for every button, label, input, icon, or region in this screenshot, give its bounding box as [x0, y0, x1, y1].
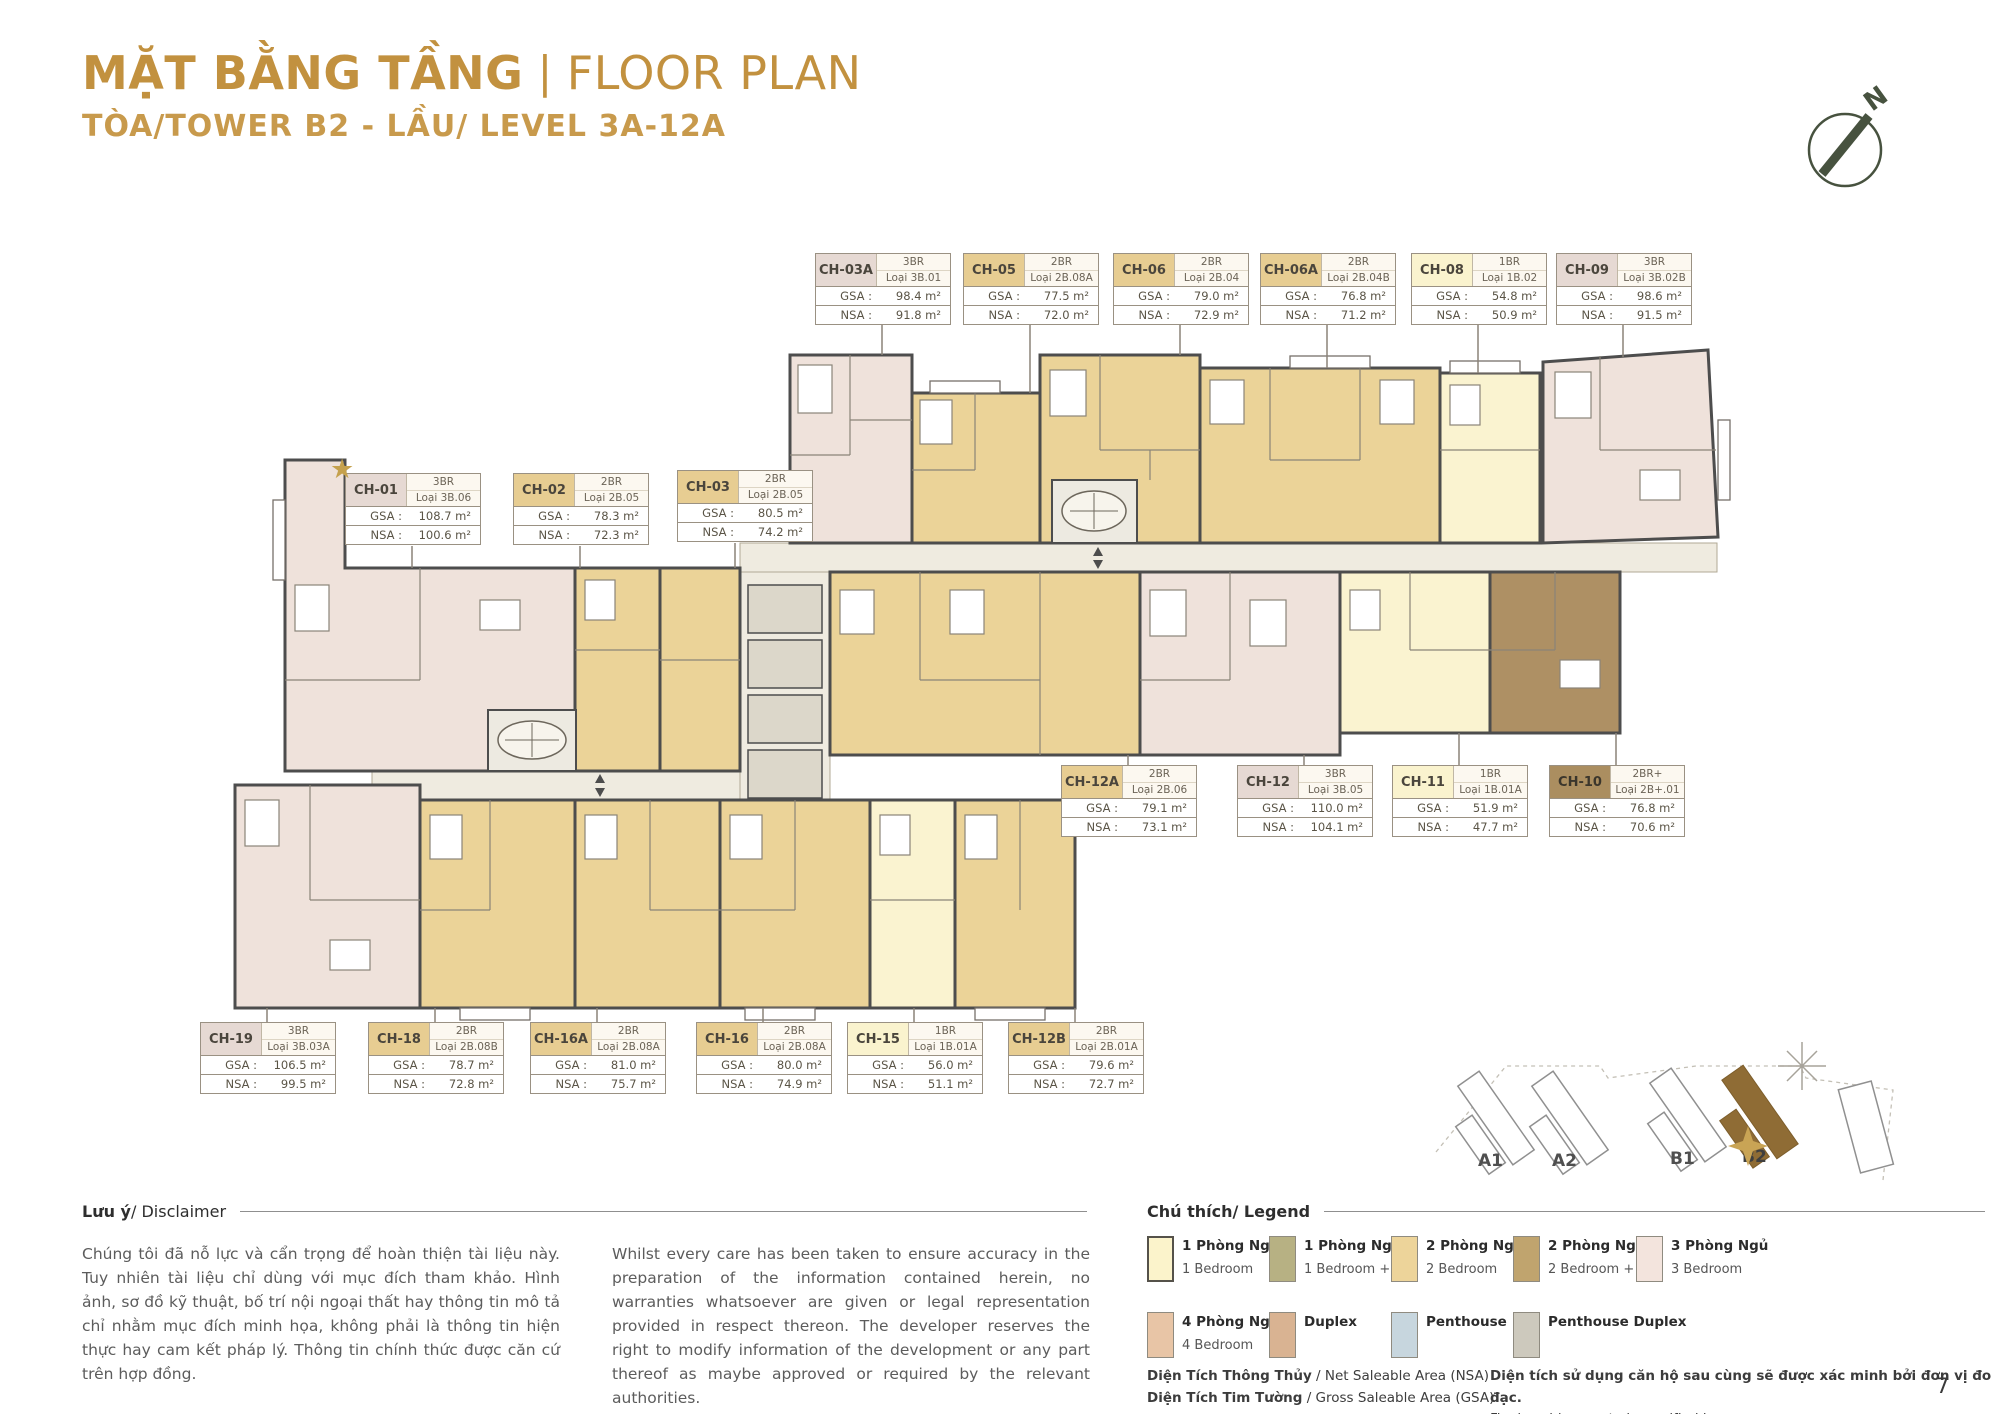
unit-nsa-row: NSA : 91.8 m²	[816, 305, 950, 324]
legend-item-9: Penthouse Duplex	[1513, 1312, 1636, 1358]
unit-id: CH-12A	[1062, 766, 1123, 798]
unit-type: Loại 2B.06	[1123, 783, 1196, 799]
unit-gsa-row: GSA : 108.7 m²	[346, 507, 480, 525]
nsa-value: 72.9 m²	[1170, 308, 1248, 322]
unit-bedrooms: 2BR	[1070, 1023, 1143, 1040]
unit-gsa-row: GSA : 79.0 m²	[1114, 287, 1248, 305]
page-number: 7	[1936, 1374, 1949, 1398]
legend-item-1: 1 Phòng Ngủ 1 Bedroom	[1147, 1236, 1269, 1282]
unit-label-header: CH-11 1BR Loại 1B.01A	[1393, 766, 1527, 799]
unit-type: Loại 3B.02B	[1618, 271, 1691, 287]
unit-label-header: CH-02 2BR Loại 2B.05	[514, 474, 648, 507]
unit-id: CH-16A	[531, 1023, 592, 1055]
unit-label-CH-11: ★ CH-11 1BR Loại 1B.01A GSA : 51.9 m² NS…	[1392, 765, 1528, 837]
unit-label-header: CH-06A 2BR Loại 2B.04B	[1261, 254, 1395, 287]
gsa-label: GSA :	[678, 506, 734, 520]
unit-bedrooms: 1BR	[1473, 254, 1546, 271]
unit-id: CH-18	[369, 1023, 430, 1055]
legend-item-4: 2 Phòng Ngủ + 2 Bedroom +	[1513, 1236, 1636, 1282]
unit-type: Loại 1B.01A	[1454, 783, 1527, 799]
nsa-label: NSA :	[1062, 820, 1118, 834]
gsa-value: 81.0 m²	[587, 1058, 665, 1072]
legend-verify-note: Diện tích sử dụng căn hộ sau cùng sẽ đượ…	[1490, 1366, 2000, 1414]
unit-bedrooms: 2BR	[430, 1023, 503, 1040]
nsa-value: 104.1 m²	[1294, 820, 1372, 834]
nsa-label: NSA :	[1114, 308, 1170, 322]
unit-label-header: CH-05 2BR Loại 2B.08A	[964, 254, 1098, 287]
gsa-label: GSA :	[848, 1058, 904, 1072]
gsa-value: 108.7 m²	[402, 509, 480, 523]
gsa-label: GSA :	[346, 509, 402, 523]
nsa-value: 75.7 m²	[587, 1077, 665, 1091]
nsa-label: NSA :	[1557, 308, 1613, 322]
unit-bedrooms: 3BR	[1618, 254, 1691, 271]
unit-label-CH-05: ★ CH-05 2BR Loại 2B.08A GSA : 77.5 m² NS…	[963, 253, 1099, 325]
gsa-value: 78.3 m²	[570, 509, 648, 523]
legend-label-en: 2 Bedroom	[1426, 1262, 1523, 1277]
unit-bedrooms: 2BR	[1175, 254, 1248, 271]
nsa-value: 72.3 m²	[570, 528, 648, 542]
unit-nsa-row: NSA : 74.9 m²	[697, 1074, 831, 1093]
unit-nsa-row: NSA : 74.2 m²	[678, 522, 812, 541]
unit-type: Loại 2B.05	[739, 488, 812, 504]
unit-bedrooms: 3BR	[262, 1023, 335, 1040]
unit-bedrooms: 2BR	[1025, 254, 1098, 271]
legend-item-7: Duplex	[1269, 1312, 1391, 1358]
unit-label-header: CH-12 3BR Loại 3B.05	[1238, 766, 1372, 799]
unit-type: Loại 2B.01A	[1070, 1040, 1143, 1056]
unit-gsa-row: GSA : 78.3 m²	[514, 507, 648, 525]
gsa-label: GSA :	[1261, 289, 1317, 303]
left-wing-corridor	[372, 771, 740, 800]
nsa-value: 50.9 m²	[1468, 308, 1546, 322]
unit-label-CH-16: ★ CH-16 2BR Loại 2B.08A GSA : 80.0 m² NS…	[696, 1022, 832, 1094]
disclaimer-heading: Lưu ý / Disclaimer	[82, 1202, 1087, 1221]
nsa-value: 74.9 m²	[753, 1077, 831, 1091]
legend-swatch	[1391, 1236, 1418, 1282]
gsa-label: GSA :	[816, 289, 872, 303]
gsa-value: 77.5 m²	[1020, 289, 1098, 303]
unit-id: CH-02	[514, 474, 575, 506]
unit-label-CH-03A: ★ CH-03A 3BR Loại 3B.01 GSA : 98.4 m² NS…	[815, 253, 951, 325]
unit-bedrooms: 2BR	[1123, 766, 1196, 783]
nsa-label: NSA :	[964, 308, 1020, 322]
gsa-value: 76.8 m²	[1317, 289, 1395, 303]
unit-id: CH-11	[1393, 766, 1454, 798]
unit-nsa-row: NSA : 50.9 m²	[1412, 305, 1546, 324]
verify-note-en: Final usable area to be verified by surv…	[1490, 1409, 2000, 1414]
unit-id: CH-05	[964, 254, 1025, 286]
gsa-value: 78.7 m²	[425, 1058, 503, 1072]
minimap-other-building	[1838, 1081, 1893, 1173]
main-corridor	[740, 543, 1717, 572]
legend-swatch	[1391, 1312, 1418, 1358]
unit-bedrooms: 2BR	[739, 471, 812, 488]
unit-nsa-row: NSA : 104.1 m²	[1238, 817, 1372, 836]
nsa-label: NSA :	[1009, 1077, 1065, 1091]
nsa-value: 91.5 m²	[1613, 308, 1691, 322]
unit-nsa-row: NSA : 75.7 m²	[531, 1074, 665, 1093]
gsa-label: GSA :	[697, 1058, 753, 1072]
legend-item-6: 4 Phòng Ngủ 4 Bedroom	[1147, 1312, 1269, 1358]
unit-id: CH-08	[1412, 254, 1473, 286]
unit-nsa-row: NSA : 72.8 m²	[369, 1074, 503, 1093]
legend-label-vn: Duplex	[1304, 1314, 1357, 1330]
unit-gsa-row: GSA : 81.0 m²	[531, 1056, 665, 1074]
minimap-label-b1: B1	[1670, 1149, 1695, 1169]
legend-notes: Diện Tích Thông Thủy / Net Saleable Area…	[1147, 1366, 1494, 1409]
legend-label-vn: 1 Phòng Ngủ	[1182, 1238, 1279, 1254]
unit-id: CH-19	[201, 1023, 262, 1055]
unit-nsa-row: NSA : 47.7 m²	[1393, 817, 1527, 836]
unit-gsa-row: GSA : 56.0 m²	[848, 1056, 982, 1074]
unit-label-CH-09: ★ CH-09 3BR Loại 3B.02B GSA : 98.6 m² NS…	[1556, 253, 1692, 325]
legend-swatch	[1513, 1312, 1540, 1358]
legend-swatch	[1269, 1312, 1296, 1358]
unit-label-CH-16A: ★ CH-16A 2BR Loại 2B.08A GSA : 81.0 m² N…	[530, 1022, 666, 1094]
verify-note-vn: Diện tích sử dụng căn hộ sau cùng sẽ đượ…	[1490, 1366, 2000, 1409]
legend-rule	[1324, 1211, 1985, 1212]
legend-heading-en: / Legend	[1233, 1202, 1311, 1221]
gsa-value: 76.8 m²	[1606, 801, 1684, 815]
legend-label-vn: 4 Phòng Ngủ	[1182, 1314, 1279, 1330]
unit-gsa-row: GSA : 80.5 m²	[678, 504, 812, 522]
gsa-value: 80.0 m²	[753, 1058, 831, 1072]
gsa-label: GSA :	[531, 1058, 587, 1072]
unit-nsa-row: NSA : 72.3 m²	[514, 525, 648, 544]
unit-gsa-row: GSA : 98.6 m²	[1557, 287, 1691, 305]
nsa-value: 72.7 m²	[1065, 1077, 1143, 1091]
unit-type: Loại 2B.08A	[758, 1040, 831, 1056]
legend-item-5: 3 Phòng Ngủ 3 Bedroom	[1636, 1236, 1867, 1282]
nsa-value: 73.1 m²	[1118, 820, 1196, 834]
nsa-value: 71.2 m²	[1317, 308, 1395, 322]
unit-nsa-row: NSA : 71.2 m²	[1261, 305, 1395, 324]
unit-nsa-row: NSA : 72.7 m²	[1009, 1074, 1143, 1093]
legend-swatch	[1269, 1236, 1296, 1282]
unit-gsa-row: GSA : 106.5 m²	[201, 1056, 335, 1074]
unit-label-CH-02: ★ CH-02 2BR Loại 2B.05 GSA : 78.3 m² NSA…	[513, 473, 649, 545]
unit-bedrooms: 3BR	[407, 474, 480, 491]
nsa-label: NSA :	[816, 308, 872, 322]
unit-label-CH-12B: ★ CH-12B 2BR Loại 2B.01A GSA : 79.6 m² N…	[1008, 1022, 1144, 1094]
legend-label-vn: 2 Phòng Ngủ	[1426, 1238, 1523, 1254]
unit-label-header: CH-16 2BR Loại 2B.08A	[697, 1023, 831, 1056]
nsa-value: 51.1 m²	[904, 1077, 982, 1091]
legend-label-vn: Penthouse	[1426, 1314, 1507, 1330]
legend-note-line: Diện Tích Tim Tường / Gross Saleable Are…	[1147, 1388, 1494, 1410]
legend-swatch	[1513, 1236, 1540, 1282]
unit-type: Loại 3B.03A	[262, 1040, 335, 1056]
unit-label-header: CH-06 2BR Loại 2B.04	[1114, 254, 1248, 287]
unit-type: Loại 3B.05	[1299, 783, 1372, 799]
nsa-value: 99.5 m²	[257, 1077, 335, 1091]
disclaimer-heading-vn: Lưu ý	[82, 1202, 131, 1221]
unit-label-header: CH-18 2BR Loại 2B.08B	[369, 1023, 503, 1056]
unit-nsa-row: NSA : 99.5 m²	[201, 1074, 335, 1093]
disclaimer-text-vn: Chúng tôi đã nỗ lực và cẩn trọng để hoàn…	[82, 1242, 560, 1386]
unit-bedrooms: 2BR	[575, 474, 648, 491]
unit-gsa-row: GSA : 79.1 m²	[1062, 799, 1196, 817]
legend-swatch	[1147, 1236, 1174, 1282]
gsa-label: GSA :	[1550, 801, 1606, 815]
gsa-label: GSA :	[201, 1058, 257, 1072]
nsa-value: 72.0 m²	[1020, 308, 1098, 322]
legend-heading: Chú thích / Legend	[1147, 1202, 1985, 1221]
gsa-value: 51.9 m²	[1449, 801, 1527, 815]
nsa-value: 100.6 m²	[402, 528, 480, 542]
unit-type: Loại 2B.08B	[430, 1040, 503, 1056]
unit-bedrooms: 2BR+	[1611, 766, 1684, 783]
unit-type: Loại 3B.06	[407, 491, 480, 507]
unit-area-CH-03	[660, 568, 740, 771]
unit-gsa-row: GSA : 54.8 m²	[1412, 287, 1546, 305]
nsa-label: NSA :	[346, 528, 402, 542]
unit-id: CH-10	[1550, 766, 1611, 798]
unit-label-header: CH-16A 2BR Loại 2B.08A	[531, 1023, 665, 1056]
gsa-label: GSA :	[1062, 801, 1118, 815]
unit-nsa-row: NSA : 72.0 m²	[964, 305, 1098, 324]
unit-id: CH-06A	[1261, 254, 1322, 286]
unit-id: CH-01	[346, 474, 407, 506]
unit-label-CH-18: ★ CH-18 2BR Loại 2B.08B GSA : 78.7 m² NS…	[368, 1022, 504, 1094]
unit-nsa-row: NSA : 100.6 m²	[346, 525, 480, 544]
unit-type: Loại 2B.04	[1175, 271, 1248, 287]
unit-id: CH-16	[697, 1023, 758, 1055]
gsa-value: 98.4 m²	[872, 289, 950, 303]
star-icon: ★	[330, 456, 354, 483]
unit-gsa-row: GSA : 80.0 m²	[697, 1056, 831, 1074]
nsa-value: 47.7 m²	[1449, 820, 1527, 834]
disclaimer-rule	[240, 1211, 1087, 1212]
unit-label-CH-12: ★ CH-12 3BR Loại 3B.05 GSA : 110.0 m² NS…	[1237, 765, 1373, 837]
nsa-label: NSA :	[531, 1077, 587, 1091]
unit-nsa-row: NSA : 91.5 m²	[1557, 305, 1691, 324]
unit-gsa-row: GSA : 79.6 m²	[1009, 1056, 1143, 1074]
gsa-label: GSA :	[369, 1058, 425, 1072]
unit-label-header: CH-08 1BR Loại 1B.02	[1412, 254, 1546, 287]
unit-type: Loại 1B.02	[1473, 271, 1546, 287]
gsa-value: 106.5 m²	[257, 1058, 335, 1072]
unit-bedrooms: 1BR	[909, 1023, 982, 1040]
legend-swatch	[1147, 1312, 1174, 1358]
unit-label-CH-06: ★ CH-06 2BR Loại 2B.04 GSA : 79.0 m² NSA…	[1113, 253, 1249, 325]
legend-label-en: 4 Bedroom	[1182, 1338, 1279, 1353]
unit-nsa-row: NSA : 72.9 m²	[1114, 305, 1248, 324]
nsa-value: 74.2 m²	[734, 525, 812, 539]
unit-label-header: CH-03 2BR Loại 2B.05	[678, 471, 812, 504]
unit-id: CH-15	[848, 1023, 909, 1055]
nsa-label: NSA :	[1412, 308, 1468, 322]
unit-bedrooms: 2BR	[1322, 254, 1395, 271]
unit-type: Loại 2B+.01	[1611, 783, 1684, 799]
unit-bedrooms: 3BR	[1299, 766, 1372, 783]
legend-item-3: 2 Phòng Ngủ 2 Bedroom	[1391, 1236, 1513, 1282]
unit-gsa-row: GSA : 51.9 m²	[1393, 799, 1527, 817]
minimap-label-a1: A1	[1478, 1151, 1503, 1171]
legend-label-vn: 3 Phòng Ngủ	[1671, 1238, 1768, 1254]
unit-id: CH-09	[1557, 254, 1618, 286]
gsa-value: 56.0 m²	[904, 1058, 982, 1072]
unit-bedrooms: 1BR	[1454, 766, 1527, 783]
gsa-label: GSA :	[1009, 1058, 1065, 1072]
unit-label-CH-19: ★ CH-19 3BR Loại 3B.03A GSA : 106.5 m² N…	[200, 1022, 336, 1094]
unit-label-header: CH-01 3BR Loại 3B.06	[346, 474, 480, 507]
nsa-value: 70.6 m²	[1606, 820, 1684, 834]
gsa-label: GSA :	[1238, 801, 1294, 815]
unit-id: CH-12B	[1009, 1023, 1070, 1055]
unit-label-CH-03: ★ CH-03 2BR Loại 2B.05 GSA : 80.5 m² NSA…	[677, 470, 813, 542]
unit-bedrooms: 2BR	[592, 1023, 665, 1040]
unit-type: Loại 1B.01A	[909, 1040, 982, 1056]
disclaimer-heading-en: / Disclaimer	[131, 1202, 226, 1221]
unit-label-CH-10: ★ CH-10 2BR+ Loại 2B+.01 GSA : 76.8 m² N…	[1549, 765, 1685, 837]
nsa-label: NSA :	[201, 1077, 257, 1091]
unit-label-header: CH-10 2BR+ Loại 2B+.01	[1550, 766, 1684, 799]
unit-gsa-row: GSA : 110.0 m²	[1238, 799, 1372, 817]
nsa-label: NSA :	[369, 1077, 425, 1091]
unit-label-header: CH-12B 2BR Loại 2B.01A	[1009, 1023, 1143, 1056]
nsa-label: NSA :	[678, 525, 734, 539]
unit-type: Loại 2B.08A	[1025, 271, 1098, 287]
unit-type: Loại 2B.05	[575, 491, 648, 507]
unit-type: Loại 2B.08A	[592, 1040, 665, 1056]
unit-area-CH-12A	[830, 572, 1140, 755]
compass-north-label: N	[1858, 81, 1893, 118]
legend-label-en: 1 Bedroom	[1182, 1262, 1279, 1277]
floor-plan-page: MẶT BẰNG TẦNG | FLOOR PLAN TÒA/TOWER B2 …	[0, 0, 2000, 1414]
gsa-value: 54.8 m²	[1468, 289, 1546, 303]
unit-id: CH-03A	[816, 254, 877, 286]
gsa-label: GSA :	[1557, 289, 1613, 303]
unit-nsa-row: NSA : 70.6 m²	[1550, 817, 1684, 836]
gsa-label: GSA :	[1114, 289, 1170, 303]
unit-gsa-row: GSA : 76.8 m²	[1261, 287, 1395, 305]
nsa-value: 72.8 m²	[425, 1077, 503, 1091]
gsa-label: GSA :	[1393, 801, 1449, 815]
nsa-label: NSA :	[697, 1077, 753, 1091]
unit-gsa-row: GSA : 78.7 m²	[369, 1056, 503, 1074]
unit-label-header: CH-12A 2BR Loại 2B.06	[1062, 766, 1196, 799]
legend-label-en: 3 Bedroom	[1671, 1262, 1768, 1277]
unit-gsa-row: GSA : 76.8 m²	[1550, 799, 1684, 817]
nsa-label: NSA :	[1238, 820, 1294, 834]
gsa-label: GSA :	[964, 289, 1020, 303]
minimap-label-a2: A2	[1552, 1151, 1577, 1171]
legend-items: 1 Phòng Ngủ 1 Bedroom 1 Phòng Ngủ + 1 Be…	[1147, 1236, 1867, 1358]
legend-item-2: 1 Phòng Ngủ + 1 Bedroom +	[1269, 1236, 1391, 1282]
unit-label-CH-06A: ★ CH-06A 2BR Loại 2B.04B GSA : 76.8 m² N…	[1260, 253, 1396, 325]
gsa-value: 79.6 m²	[1065, 1058, 1143, 1072]
legend-swatch	[1636, 1236, 1663, 1282]
gsa-label: GSA :	[514, 509, 570, 523]
unit-bedrooms: 3BR	[877, 254, 950, 271]
unit-nsa-row: NSA : 73.1 m²	[1062, 817, 1196, 836]
minimap-compass-star-icon	[1778, 1042, 1826, 1090]
unit-nsa-row: NSA : 51.1 m²	[848, 1074, 982, 1093]
unit-label-CH-12A: ★ CH-12A 2BR Loại 2B.06 GSA : 79.1 m² NS…	[1061, 765, 1197, 837]
gsa-value: 80.5 m²	[734, 506, 812, 520]
unit-label-header: CH-03A 3BR Loại 3B.01	[816, 254, 950, 287]
unit-label-header: CH-15 1BR Loại 1B.01A	[848, 1023, 982, 1056]
unit-id: CH-06	[1114, 254, 1175, 286]
unit-type: Loại 2B.04B	[1322, 271, 1395, 287]
nsa-label: NSA :	[1550, 820, 1606, 834]
unit-label-CH-15: ★ CH-15 1BR Loại 1B.01A GSA : 56.0 m² NS…	[847, 1022, 983, 1094]
unit-label-CH-08: ★ CH-08 1BR Loại 1B.02 GSA : 54.8 m² NSA…	[1411, 253, 1547, 325]
unit-type: Loại 3B.01	[877, 271, 950, 287]
legend-label-vn: Penthouse Duplex	[1548, 1314, 1686, 1330]
unit-gsa-row: GSA : 77.5 m²	[964, 287, 1098, 305]
unit-bedrooms: 2BR	[758, 1023, 831, 1040]
legend-heading-vn: Chú thích	[1147, 1202, 1233, 1221]
unit-id: CH-03	[678, 471, 739, 503]
legend-item-8: Penthouse	[1391, 1312, 1513, 1358]
unit-label-CH-01: ★ CH-01 3BR Loại 3B.06 GSA : 108.7 m² NS…	[345, 473, 481, 545]
nsa-label: NSA :	[1261, 308, 1317, 322]
gsa-value: 110.0 m²	[1294, 801, 1372, 815]
legend-note-line: Diện Tích Thông Thủy / Net Saleable Area…	[1147, 1366, 1494, 1388]
nsa-label: NSA :	[1393, 820, 1449, 834]
gsa-value: 98.6 m²	[1613, 289, 1691, 303]
disclaimer-text-en: Whilst every care has been taken to ensu…	[612, 1242, 1090, 1410]
unit-gsa-row: GSA : 98.4 m²	[816, 287, 950, 305]
nsa-label: NSA :	[514, 528, 570, 542]
nsa-label: NSA :	[848, 1077, 904, 1091]
unit-id: CH-12	[1238, 766, 1299, 798]
gsa-value: 79.0 m²	[1170, 289, 1248, 303]
gsa-value: 79.1 m²	[1118, 801, 1196, 815]
nsa-value: 91.8 m²	[872, 308, 950, 322]
unit-label-header: CH-19 3BR Loại 3B.03A	[201, 1023, 335, 1056]
gsa-label: GSA :	[1412, 289, 1468, 303]
site-minimap: A1 A2 B1 B2	[1436, 1042, 1893, 1180]
unit-label-header: CH-09 3BR Loại 3B.02B	[1557, 254, 1691, 287]
compass-icon: N	[1809, 81, 1894, 186]
